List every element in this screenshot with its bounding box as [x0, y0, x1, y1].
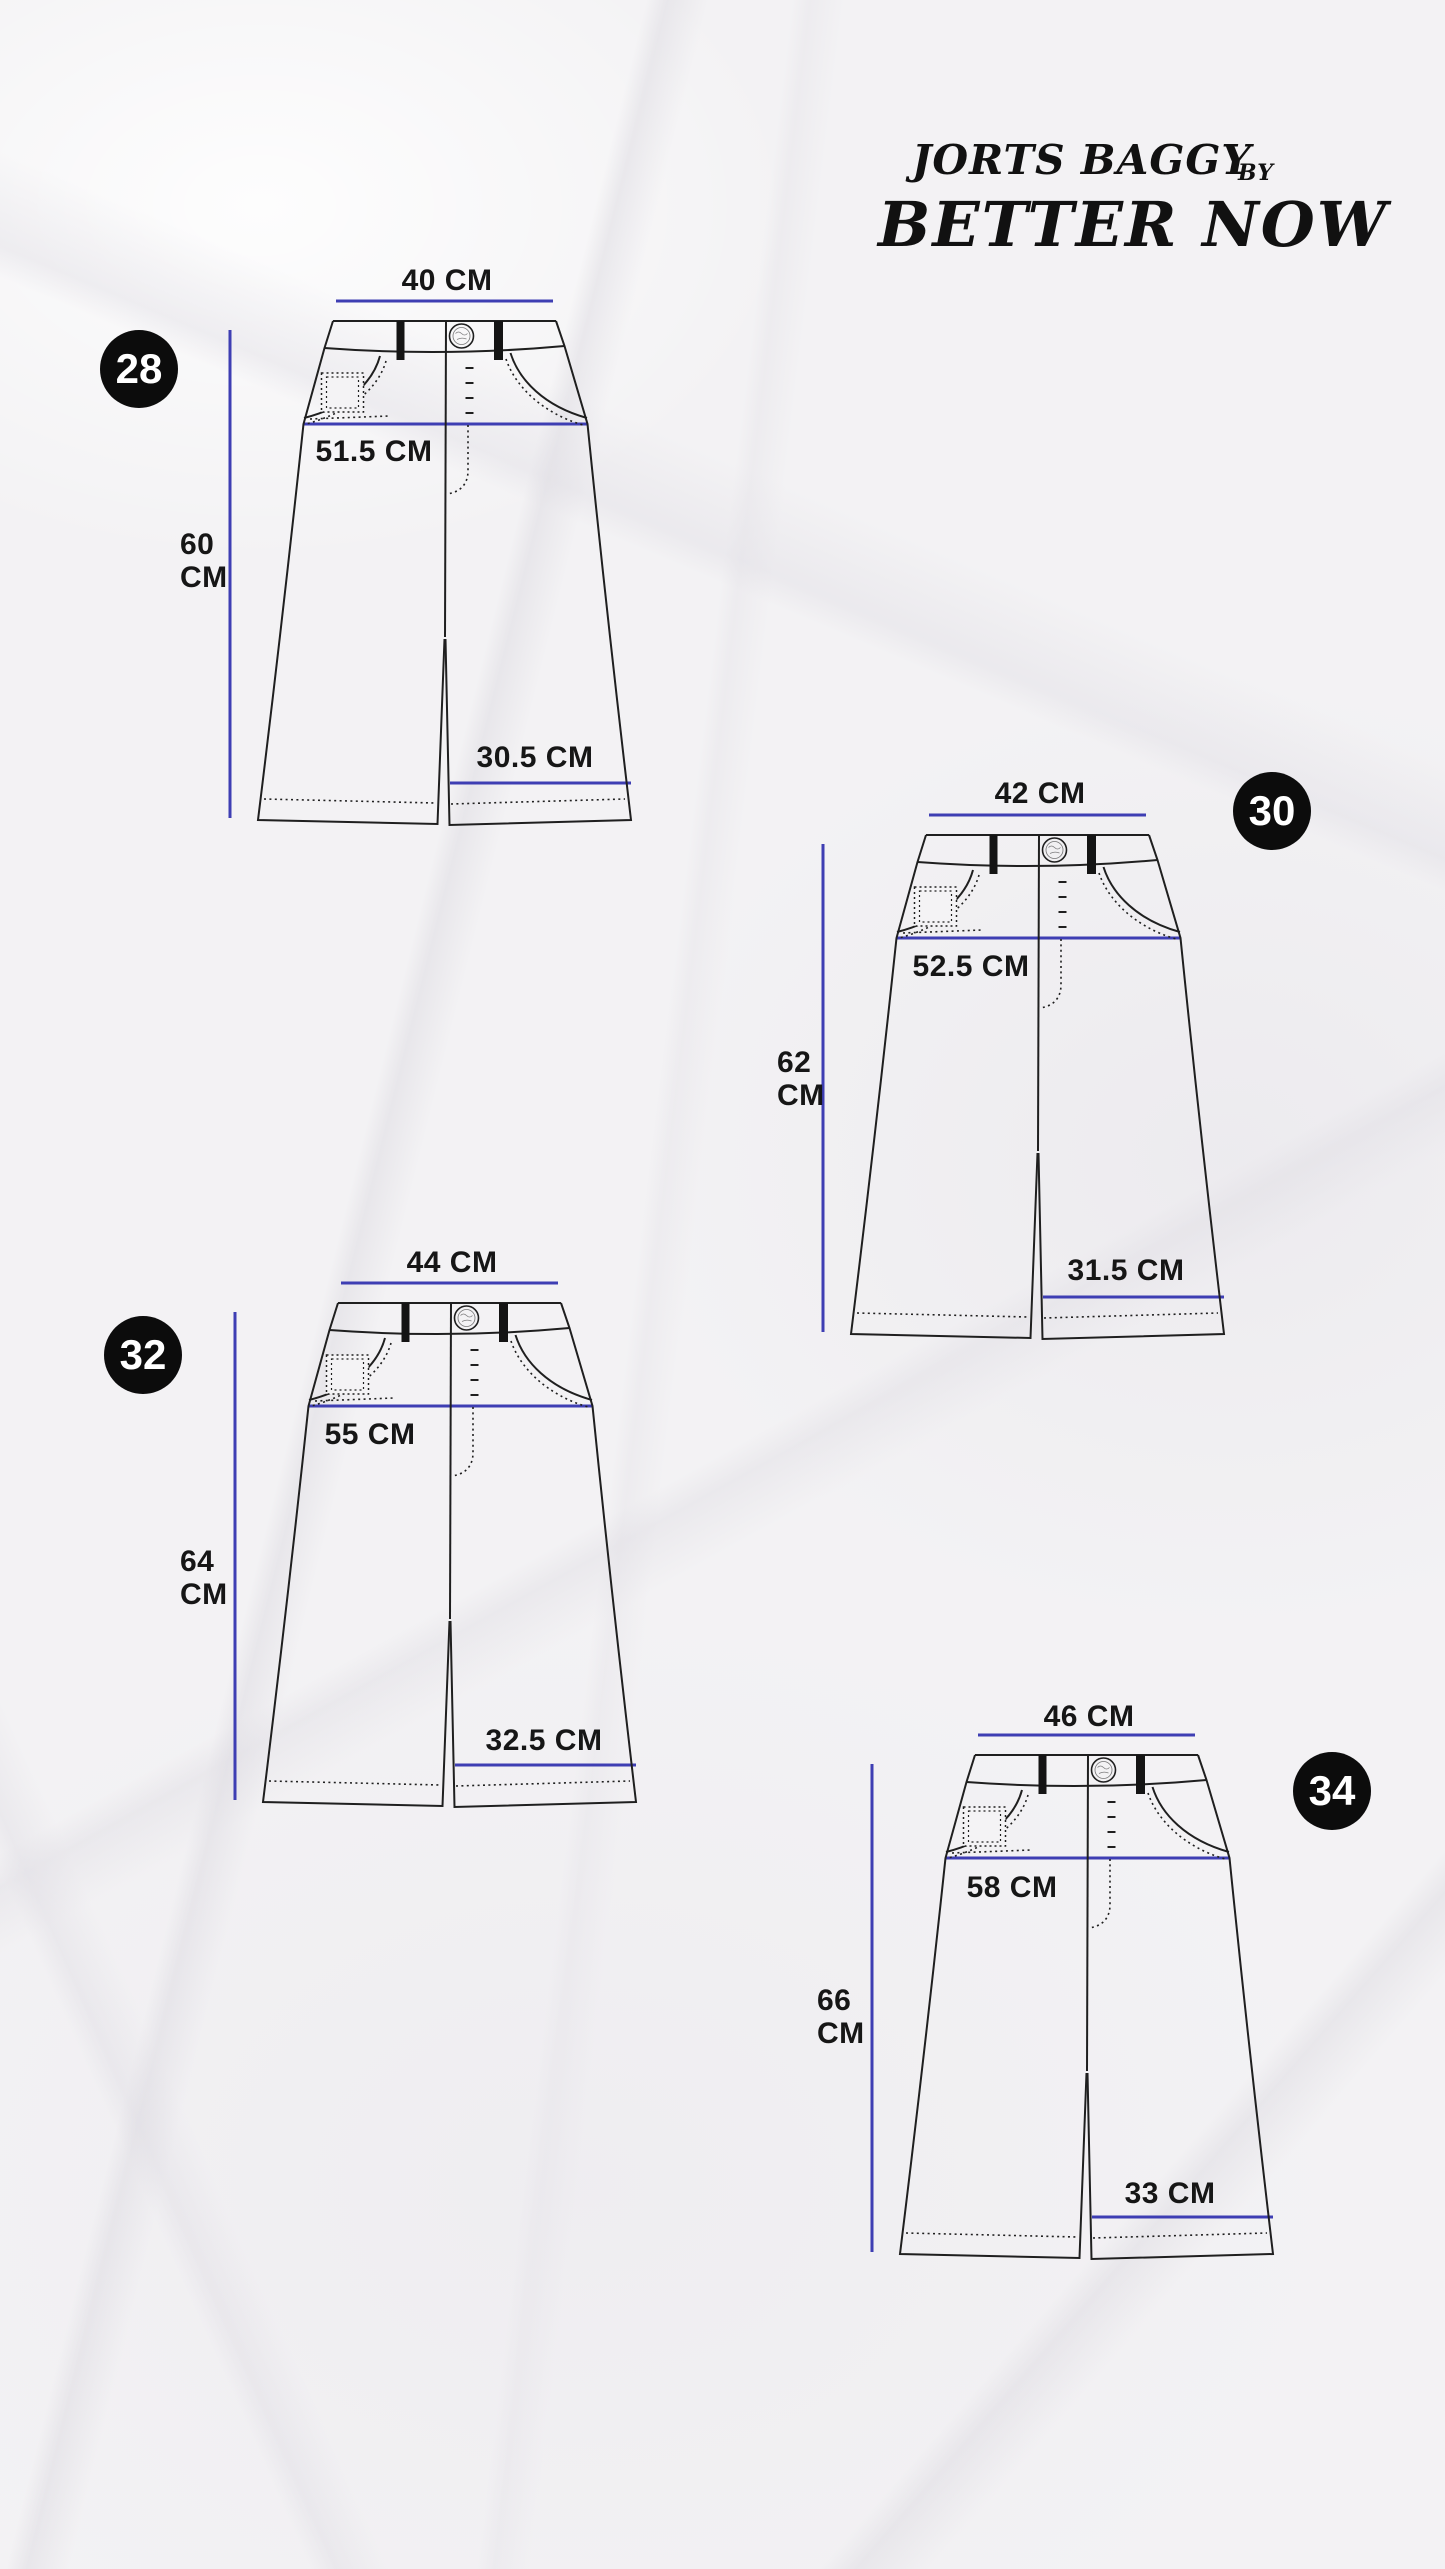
leg-opening-measurement-label: 33 CM	[1125, 2177, 1216, 2210]
length-measurement-label: 62 CM	[777, 1046, 825, 1112]
jorts-diagram-34	[856, 1721, 1316, 2266]
length-value: 66	[817, 1984, 865, 2017]
by-label: BY	[1238, 160, 1274, 186]
size-30-group	[807, 801, 1267, 1346]
length-unit: CM	[777, 1079, 825, 1112]
length-value: 60	[180, 528, 228, 561]
leg-opening-measurement-label: 30.5 CM	[477, 741, 594, 774]
length-measurement-label: 60 CM	[180, 528, 228, 594]
size-badge-30: 30	[1233, 772, 1311, 850]
leg-opening-measurement-label: 31.5 CM	[1068, 1254, 1185, 1287]
size-badge-34-number: 34	[1309, 1767, 1356, 1815]
length-value: 62	[777, 1046, 825, 1079]
size-badge-28: 28	[100, 330, 178, 408]
size-badge-30-number: 30	[1249, 787, 1296, 835]
leg-opening-measurement-label: 32.5 CM	[486, 1724, 603, 1757]
hip-measurement-label: 52.5 CM	[913, 950, 1030, 983]
jorts-diagram-30	[807, 801, 1267, 1346]
waist-measurement-label: 46 CM	[1044, 1700, 1135, 1733]
jorts-diagram-32	[219, 1269, 679, 1814]
brand-name: BETTER NOW	[878, 188, 1348, 261]
size-badge-28-number: 28	[116, 345, 163, 393]
length-unit: CM	[180, 561, 228, 594]
length-unit: CM	[817, 2017, 865, 2050]
waist-measurement-label: 42 CM	[995, 777, 1086, 810]
size-badge-34: 34	[1293, 1752, 1371, 1830]
hip-measurement-label: 58 CM	[967, 1871, 1058, 1904]
length-measurement-label: 64 CM	[180, 1545, 228, 1611]
waist-measurement-label: 44 CM	[407, 1246, 498, 1279]
jorts-diagram-28	[214, 287, 674, 832]
product-line-title: JORTS BAGGY	[912, 136, 1222, 184]
size-28-group	[214, 287, 674, 832]
hip-measurement-label: 55 CM	[325, 1418, 416, 1451]
size-badge-32: 32	[104, 1316, 182, 1394]
size-32-group	[219, 1269, 679, 1814]
size-badge-32-number: 32	[120, 1331, 167, 1379]
length-measurement-label: 66 CM	[817, 1984, 865, 2050]
waist-measurement-label: 40 CM	[402, 264, 493, 297]
length-value: 64	[180, 1545, 228, 1578]
size-chart-poster: { "brand": { "product_line": "JORTS BAGG…	[0, 0, 1445, 2569]
size-34-group	[856, 1721, 1316, 2266]
length-unit: CM	[180, 1578, 228, 1611]
hip-measurement-label: 51.5 CM	[316, 435, 433, 468]
